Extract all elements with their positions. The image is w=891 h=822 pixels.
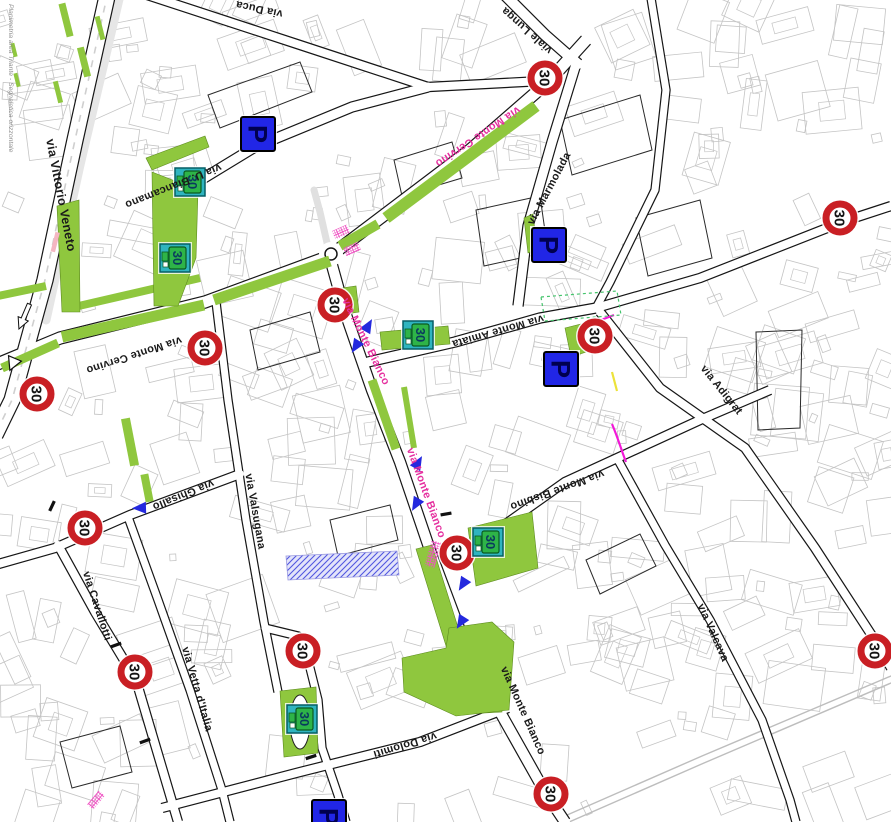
svg-text:P: P xyxy=(313,808,343,822)
speed-limit-30-sign: 30 xyxy=(284,632,322,670)
speed-limit-30-sign: 30 xyxy=(526,59,564,97)
speed-limit-30-sign: 30 xyxy=(532,775,570,813)
svg-text:30: 30 xyxy=(196,340,213,357)
parking-sign: P xyxy=(530,226,568,264)
svg-text:30: 30 xyxy=(126,664,143,681)
street-label: via Ghisallo xyxy=(151,477,216,513)
triante-signage-plan-map: 303030303030303030303030PPPP3030303030vi… xyxy=(0,0,891,822)
stop-bar-marking xyxy=(440,511,451,516)
svg-text:30: 30 xyxy=(28,386,45,403)
zone-30-sign: 30 xyxy=(158,242,192,274)
street-label: via Monte Cervino xyxy=(85,334,184,376)
green-area xyxy=(386,106,536,218)
road xyxy=(58,545,178,822)
green-area xyxy=(402,622,514,716)
yellow-marking xyxy=(612,372,617,391)
map-caption: Planimetria area Triante - Segnaletica o… xyxy=(7,4,14,153)
speed-limit-30-sign: 30 xyxy=(186,329,224,367)
stop-bar-marking xyxy=(305,754,316,760)
svg-text:30: 30 xyxy=(76,520,93,537)
speed-limit-30-sign: 30 xyxy=(438,534,476,572)
street-label: via Dolomiti xyxy=(372,729,439,760)
svg-text:30: 30 xyxy=(866,643,883,660)
svg-text:30: 30 xyxy=(326,297,343,314)
svg-text:30: 30 xyxy=(536,70,553,87)
speed-limit-30-sign: 30 xyxy=(821,199,859,237)
svg-text:P: P xyxy=(242,125,272,143)
building-block-outline xyxy=(756,330,802,430)
svg-text:30: 30 xyxy=(542,786,559,803)
speed-limit-30-sign: 30 xyxy=(66,509,104,547)
speed-limit-30-sign: 30 xyxy=(576,317,614,355)
parking-sign: P xyxy=(310,798,348,822)
zone-30-sign: 30 xyxy=(401,319,435,351)
stop-bar-marking xyxy=(139,738,150,745)
svg-text:30: 30 xyxy=(448,545,465,562)
blue-hatch-area xyxy=(286,551,399,580)
green-area xyxy=(121,418,139,467)
stop-bar-marking xyxy=(48,500,56,511)
svg-text:30: 30 xyxy=(294,643,311,660)
green-area xyxy=(53,81,63,104)
map-canvas: 303030303030303030303030PPPP3030303030vi… xyxy=(0,0,891,822)
street-label: via Valcava xyxy=(695,602,731,664)
parking-sign: P xyxy=(239,115,277,153)
green-area xyxy=(146,136,209,170)
svg-text:30: 30 xyxy=(831,210,848,227)
building-block-outline xyxy=(330,505,398,556)
zone-30-sign: 30 xyxy=(471,526,505,558)
speed-limit-30-sign: 30 xyxy=(856,632,891,670)
green-area xyxy=(214,261,330,300)
svg-text:30: 30 xyxy=(586,328,603,345)
svg-text:P: P xyxy=(545,360,575,378)
street-label: via Monte Bisbino xyxy=(508,467,605,512)
svg-text:30: 30 xyxy=(170,251,185,265)
svg-text:30: 30 xyxy=(483,535,498,549)
svg-text:P: P xyxy=(533,236,563,254)
zone-30-sign: 30 xyxy=(285,703,319,735)
speed-limit-30-sign: 30 xyxy=(116,653,154,691)
green-area xyxy=(404,387,414,448)
one-way-arrow-icon xyxy=(454,576,472,594)
parking-sign: P xyxy=(542,350,580,388)
speed-limit-30-sign: 30 xyxy=(18,375,56,413)
green-area xyxy=(58,3,73,38)
svg-text:30: 30 xyxy=(413,328,428,342)
svg-text:30: 30 xyxy=(297,712,312,726)
street-label: via Cavallotti xyxy=(80,570,114,642)
green-area xyxy=(62,305,204,337)
